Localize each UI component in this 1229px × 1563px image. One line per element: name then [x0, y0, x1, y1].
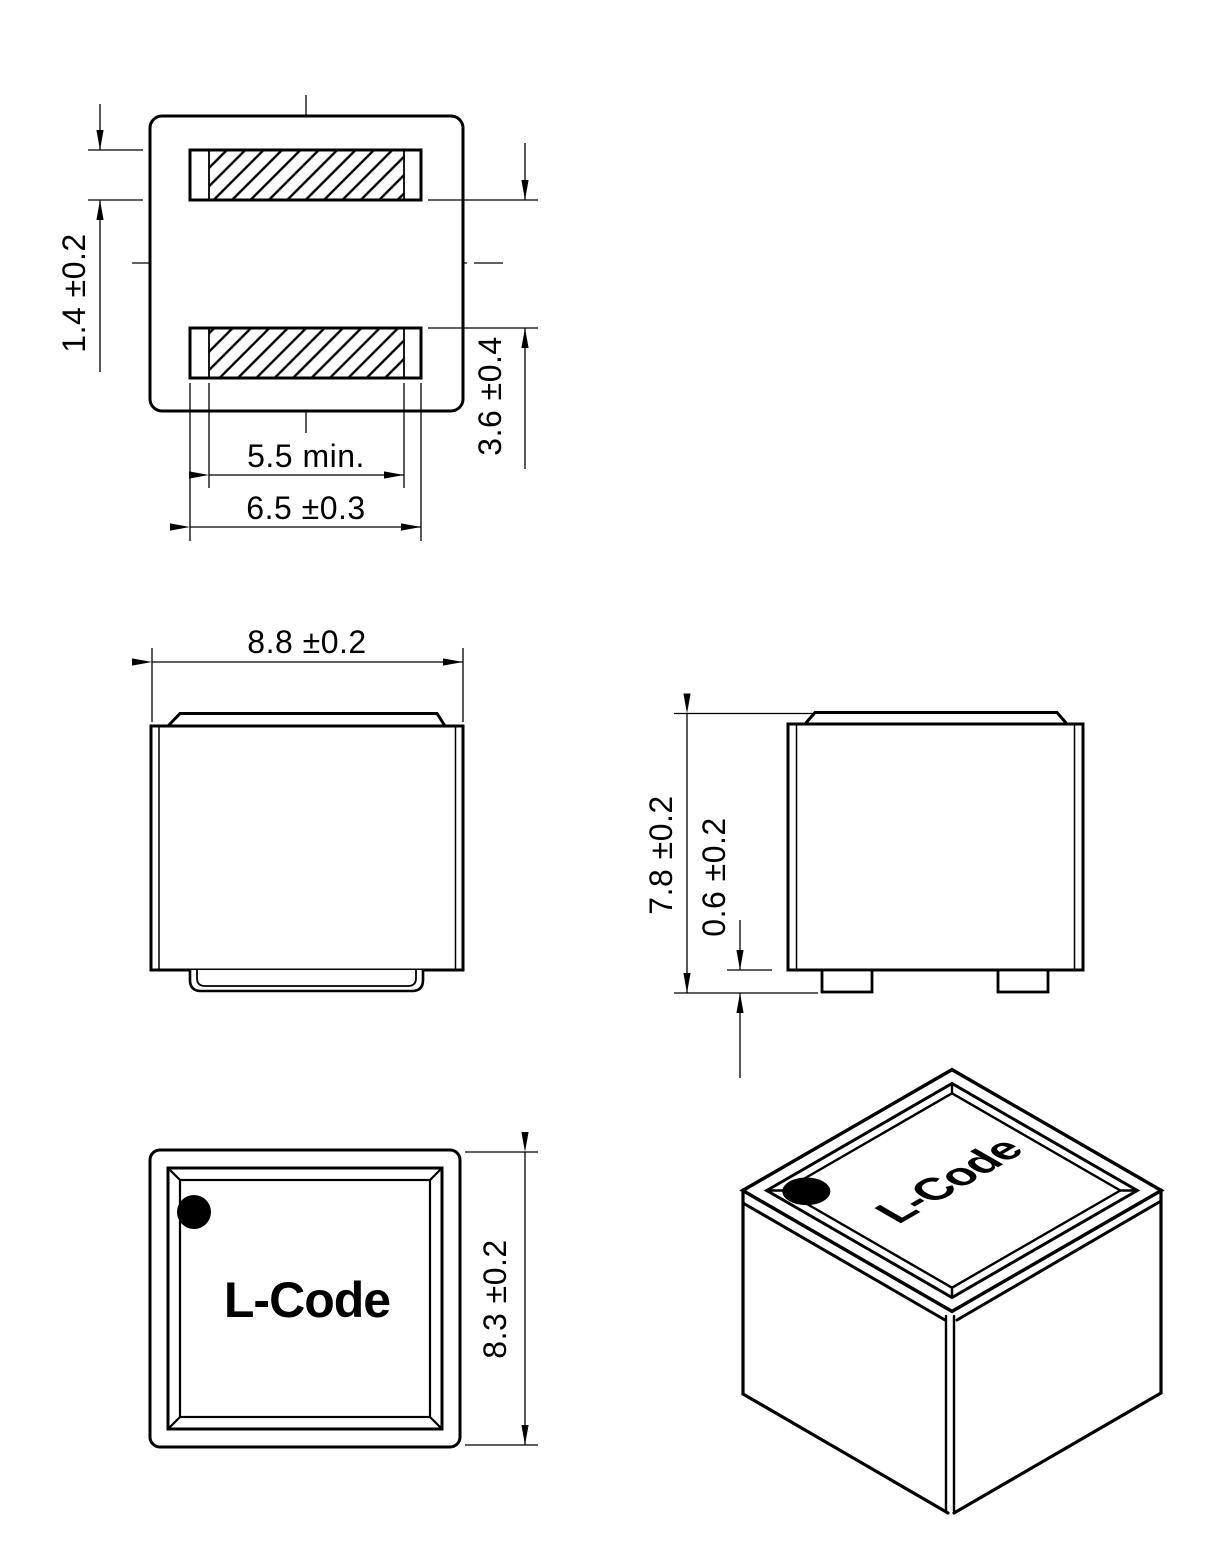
dim-label-terminal-length: 6.5 ±0.3: [246, 490, 365, 526]
front-view: 8.8 ±0.2: [151, 624, 463, 991]
dim-label-terminal-width: 1.4 ±0.2: [56, 233, 92, 352]
body-outline: [151, 726, 463, 970]
dim-label-terminal-gap: 3.6 ±0.4: [472, 336, 508, 455]
iso-top-face: L-Code: [743, 1070, 1162, 1312]
dim-terminal-width: 1.4 ±0.2: [56, 104, 100, 372]
pin1-index-dot: [177, 1195, 211, 1229]
dim-label-body-height: 7.8 ±0.2: [643, 795, 679, 914]
bottom-protrusion-outer: [190, 970, 423, 991]
bottom-view: 1.4 ±0.2 3.6 ±0.4 5.5 min. 6.5 ±0.3: [56, 95, 538, 541]
dim-terminal-length: 6.5 ±0.3: [190, 490, 421, 527]
technical-drawing-page: 1.4 ±0.2 3.6 ±0.4 5.5 min. 6.5 ±0.3 8: [0, 0, 1229, 1558]
dim-body-width: 8.8 ±0.2: [152, 624, 463, 662]
iso-bottom-right-edge: [954, 1393, 1161, 1513]
terminal-pad-top-hatch: [209, 150, 404, 200]
terminal-foot-left: [822, 970, 872, 992]
isometric-view: L-Code: [743, 1070, 1162, 1513]
dim-body-height: 7.8 ±0.2: [643, 714, 687, 994]
lid-profile: [805, 713, 1067, 725]
iso-bottom-left-edge: [743, 1394, 948, 1513]
dim-body-depth: 8.3 ±0.2: [477, 1152, 525, 1445]
marking-text: L-Code: [224, 1272, 390, 1328]
terminal-foot-right: [998, 970, 1048, 992]
dim-label-solderable-length: 5.5 min.: [247, 438, 365, 474]
dim-foot-height: 0.6 ±0.2: [696, 817, 740, 1078]
dim-label-body-width: 8.8 ±0.2: [247, 624, 366, 660]
body-outline: [788, 724, 1083, 970]
dim-label-body-depth: 8.3 ±0.2: [477, 1239, 513, 1358]
drawing-canvas: 1.4 ±0.2 3.6 ±0.4 5.5 min. 6.5 ±0.3 8: [0, 0, 1229, 1558]
terminal-pad-bottom-hatch: [209, 328, 404, 378]
top-view: L-Code 8.3 ±0.2: [150, 1150, 538, 1447]
dim-solderable-length: 5.5 min.: [209, 438, 404, 475]
side-view: 7.8 ±0.2 0.6 ±0.2: [643, 713, 1083, 1079]
dim-label-foot-height: 0.6 ±0.2: [696, 817, 732, 936]
lid-profile: [168, 714, 445, 727]
dim-terminal-gap: 3.6 ±0.4: [472, 143, 525, 469]
